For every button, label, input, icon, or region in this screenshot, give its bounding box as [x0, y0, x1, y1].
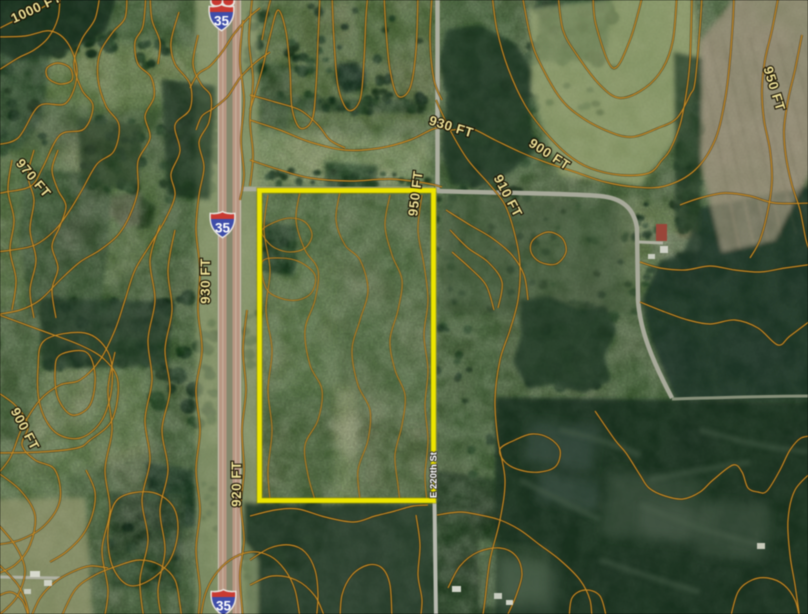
svg-text:930 FT: 930 FT: [198, 258, 213, 304]
svg-text:920 FT: 920 FT: [229, 461, 244, 507]
svg-text:E 220th St: E 220th St: [429, 451, 440, 498]
